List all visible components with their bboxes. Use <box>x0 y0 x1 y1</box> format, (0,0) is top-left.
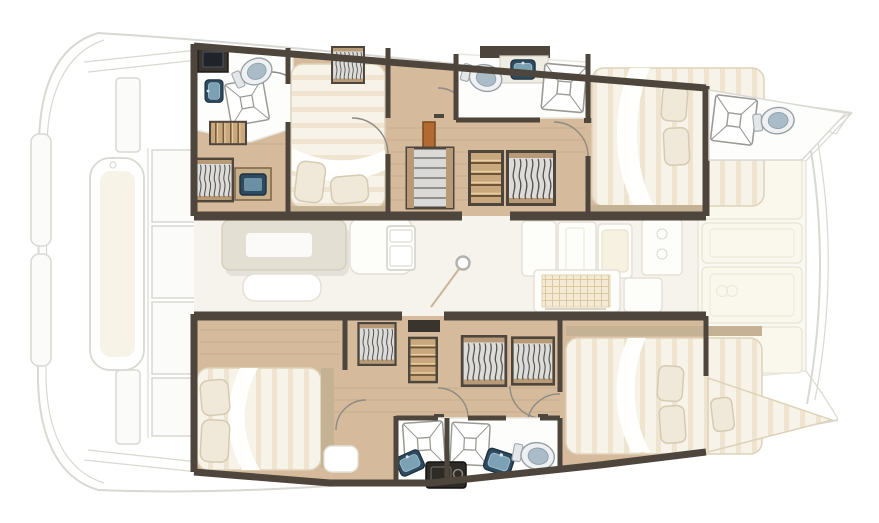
stbd-shower-2 <box>450 422 490 466</box>
galley-counter-3 <box>624 278 662 312</box>
mast-post <box>457 257 470 270</box>
port-fwd-pillow-2 <box>663 127 690 165</box>
refrigerator <box>387 226 415 270</box>
cockpit-panel-2 <box>152 226 198 298</box>
crew-head-shower <box>710 95 757 146</box>
port-aft-pillow-1 <box>294 160 327 203</box>
crossbeam-arc-outer <box>807 128 820 404</box>
cockpit-bench-cushion <box>99 170 136 358</box>
swim-step-upper <box>31 134 51 246</box>
stbd-fwd-pillow-2 <box>659 405 687 444</box>
stbd-fwd-bed-platform <box>566 326 762 336</box>
port-vanity-screen-inner <box>244 178 262 191</box>
roof-edge-bottom <box>84 450 198 472</box>
port-door-tick-1 <box>434 114 444 118</box>
galley-counter-2 <box>558 222 596 277</box>
galley <box>522 219 682 312</box>
stbd-locker-2 <box>512 338 553 385</box>
bow-tip-bottom-lines <box>806 371 838 419</box>
port-aft-head-cabinet-inset <box>203 52 223 67</box>
stbd-locker-aft <box>359 323 396 365</box>
cockpit-column-bottom <box>116 370 140 444</box>
catamaran-floor-plan: Catamaran yacht floor plan (top view, bo… <box>0 0 879 523</box>
port-aft-head-sink <box>205 80 223 103</box>
port-fwd-locker <box>508 152 555 205</box>
stbd-staircase <box>409 338 437 382</box>
stbd-locker-1 <box>462 336 506 385</box>
table-inset <box>246 233 312 257</box>
salon <box>194 216 706 316</box>
roof-edge-top <box>84 50 198 72</box>
stbd-forepeak-berth <box>708 378 832 452</box>
port-shelf-unit <box>407 148 453 208</box>
stove-grid <box>542 275 610 307</box>
port-staircase <box>470 152 503 205</box>
port-bow-crew-head <box>709 90 846 160</box>
port-hull <box>194 44 764 216</box>
port-aft-locker-2 <box>332 47 364 83</box>
bench-seat <box>243 274 321 301</box>
port-aft-pillow-2 <box>330 174 369 204</box>
lounge-pad-3 <box>702 267 802 323</box>
forepeak-pillow <box>710 397 735 432</box>
starboard-hull <box>194 314 832 488</box>
port-fwd-pillow-1 <box>661 85 688 122</box>
cockpit-column-top <box>116 78 140 152</box>
stbd-corner-seat <box>324 446 358 472</box>
port-forward-head-shower <box>541 63 587 112</box>
stbd-shelf-top <box>408 320 440 332</box>
galley-fridge <box>642 219 682 275</box>
stbd-aft-pillow-1 <box>200 379 231 416</box>
port-aft-locker <box>195 159 233 201</box>
galley-sink-basin <box>602 230 628 272</box>
swim-step-lower <box>31 254 51 366</box>
galley-counter-1 <box>522 221 556 276</box>
floorplan-canvas: Catamaran yacht floor plan (top view, bo… <box>0 0 879 523</box>
port-aft-steps <box>210 122 246 144</box>
stbd-aft-pillow-2 <box>200 419 230 462</box>
port-aft-head-shower <box>224 78 269 126</box>
crossbeam-arc-inner <box>815 132 828 400</box>
stbd-fwd-pillow-1 <box>657 365 684 402</box>
